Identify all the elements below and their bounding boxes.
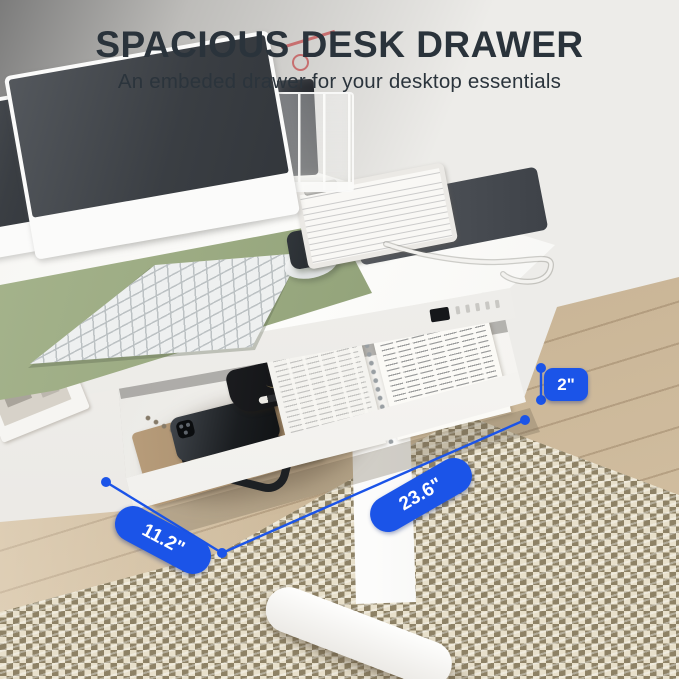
phone-camera-module bbox=[175, 419, 196, 440]
controller-display-screen bbox=[429, 307, 450, 323]
page-title: SPACIOUS DESK DRAWER bbox=[0, 24, 679, 66]
controller-preset-buttons bbox=[455, 300, 500, 315]
dimension-badge-height: 2" bbox=[544, 368, 588, 401]
product-image-desk-drawer: ⚡ SPACIOUS DESK DRAWER An embeded drawer… bbox=[0, 0, 679, 679]
page-subtitle: An embeded drawer for your desktop essen… bbox=[0, 70, 679, 94]
